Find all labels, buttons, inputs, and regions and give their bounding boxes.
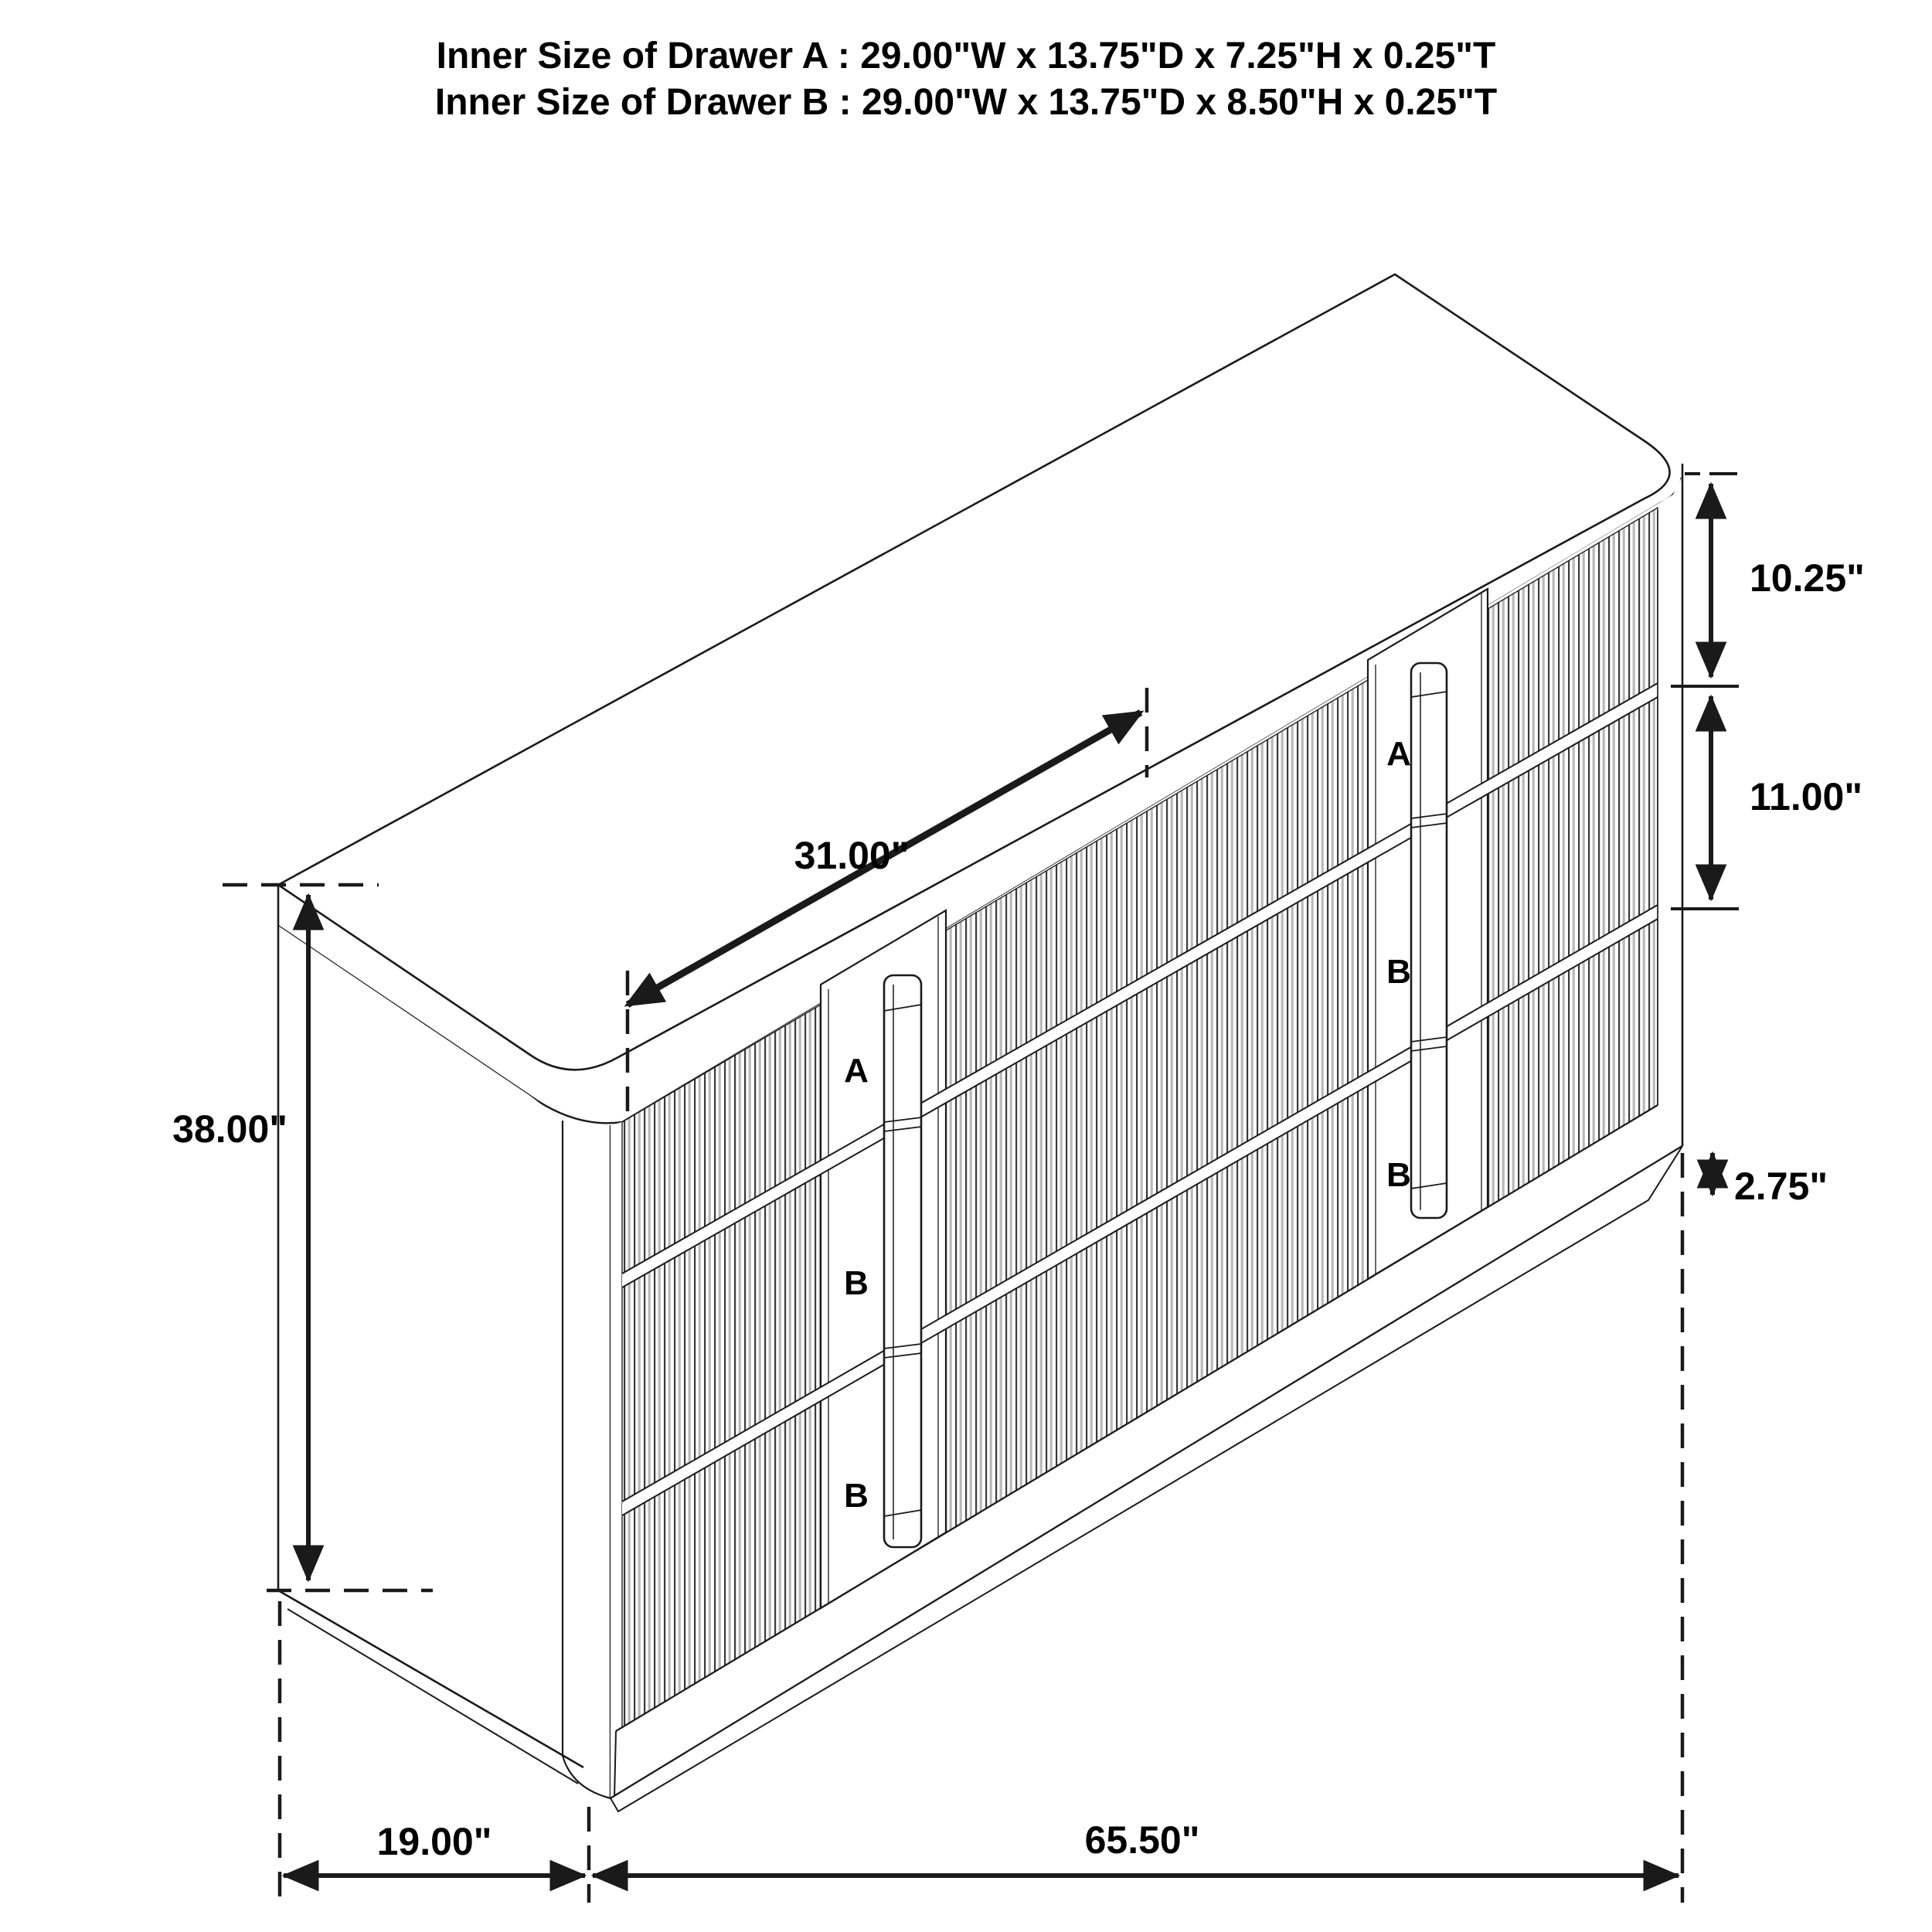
drawer-label-left-b2: B [844, 1477, 869, 1515]
fluted-panel-right [1488, 508, 1658, 1207]
dim-depth-label: 19.00" [377, 1820, 492, 1863]
drawer-label-right-a: A [1386, 735, 1411, 773]
dim-top-drawer-label: 10.25" [1750, 556, 1865, 600]
dresser-dimension-diagram: Inner Size of Drawer A : 29.00"W x 13.75… [0, 0, 1932, 1932]
handle-left [884, 975, 921, 1547]
title-line-1: Inner Size of Drawer A : 29.00"W x 13.75… [437, 36, 1496, 77]
dim-base-label: 2.75" [1734, 1165, 1828, 1208]
title-line-2: Inner Size of Drawer B : 29.00"W x 13.75… [435, 82, 1497, 123]
drawer-label-right-b2: B [1386, 1156, 1411, 1194]
dim-width-label: 65.50" [1085, 1818, 1200, 1862]
dim-middle-drawer-label: 11.00" [1750, 775, 1862, 818]
drawer-label-left-a: A [844, 1052, 869, 1090]
drawer-label-right-b1: B [1386, 953, 1411, 991]
handle-right [1411, 663, 1447, 1218]
fluted-panel-left [622, 1005, 821, 1727]
drawer-label-left-b1: B [844, 1264, 869, 1302]
dim-height-label: 38.00" [172, 1107, 287, 1151]
dim-top-width-label: 31.00" [794, 834, 910, 877]
